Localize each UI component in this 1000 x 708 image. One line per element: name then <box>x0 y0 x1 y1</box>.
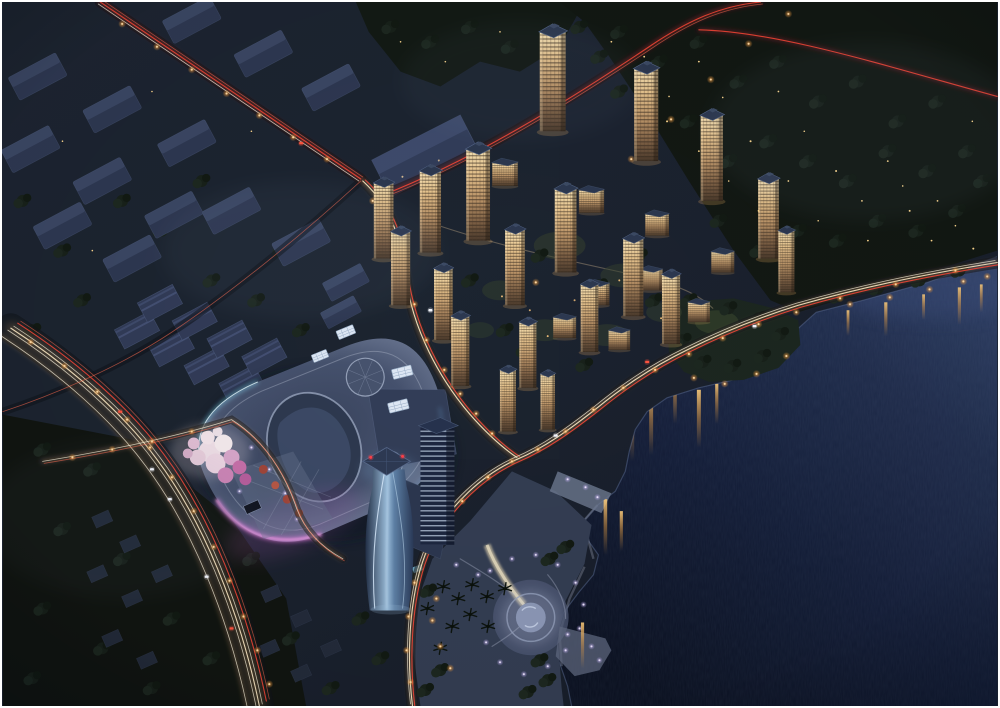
rendering-frame: Night aerial rendering of a lakeside mix… <box>0 0 1000 708</box>
night-aerial-rendering <box>2 2 998 706</box>
atmosphere <box>2 2 998 706</box>
